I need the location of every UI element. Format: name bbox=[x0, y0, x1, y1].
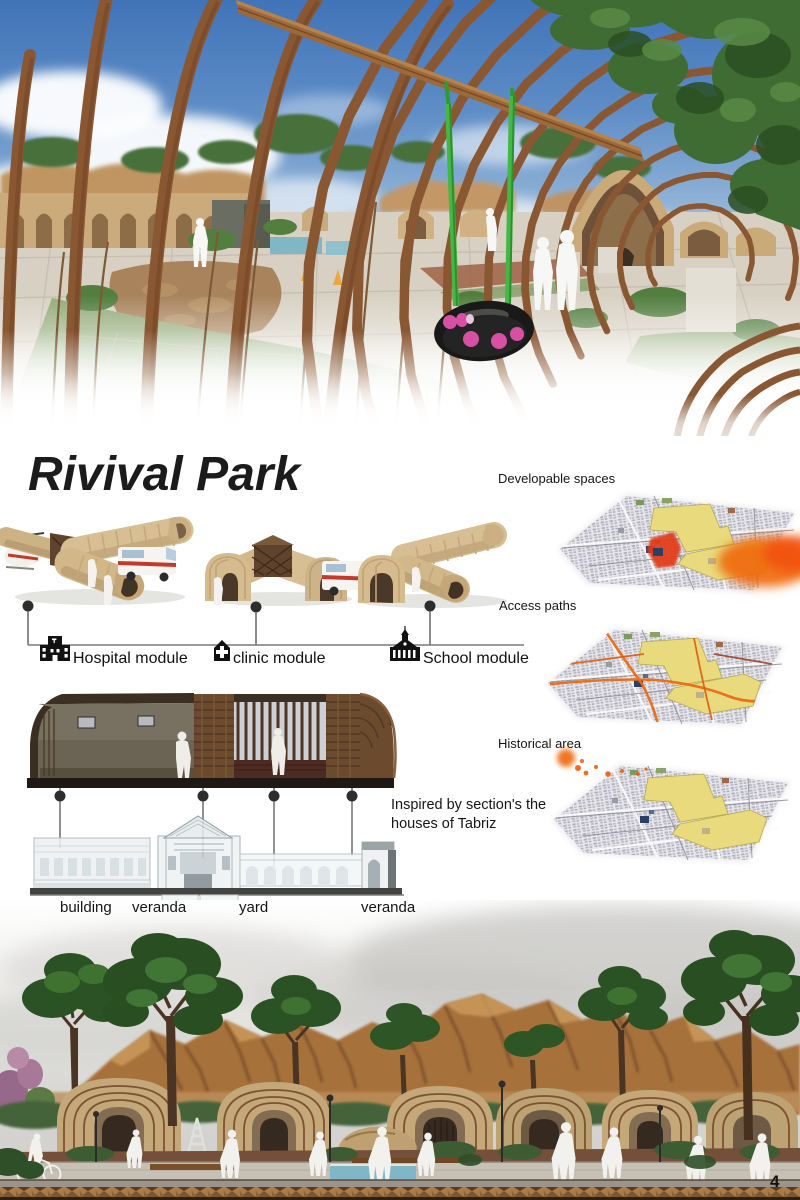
svg-text:clinic module: clinic module bbox=[233, 650, 326, 667]
svg-text:Hospital module: Hospital module bbox=[73, 650, 188, 667]
